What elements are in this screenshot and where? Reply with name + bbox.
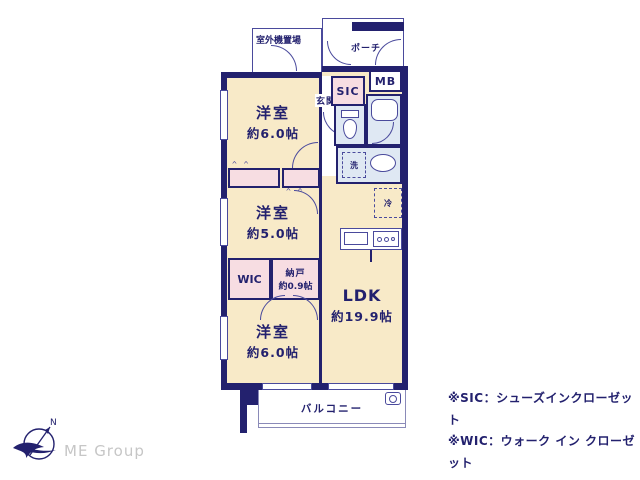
washer-space: 洗 xyxy=(342,152,366,178)
window-bedroom-top xyxy=(220,90,228,140)
floorplan: 室外機置場 ポーチ 洋室 約6.0帖 ^ ^ ^ ^ 洋室 約5.0帖 WI xyxy=(0,0,640,480)
sic-room: SIC xyxy=(331,76,365,106)
balcony-label: バルコニー xyxy=(301,401,363,416)
closet-fold-door-left: ^ ^ xyxy=(232,162,249,168)
company-name: ME Group xyxy=(64,442,145,460)
closet-strip-right xyxy=(282,168,320,188)
kitchen-sink xyxy=(344,232,368,245)
bedroom-top-size: 約6.0帖 xyxy=(247,123,299,142)
window-bedroom-bottom xyxy=(220,316,228,360)
outdoor-unit-door-arc xyxy=(271,45,297,71)
toilet-room xyxy=(334,104,366,146)
slop-sink-drain xyxy=(389,395,397,403)
compass-bird-icon: N xyxy=(12,414,70,470)
washroom: 洗 xyxy=(336,146,402,184)
toilet-tank xyxy=(341,110,359,118)
fridge-label: 冷 xyxy=(384,198,392,209)
washer-label: 洗 xyxy=(350,160,358,171)
storage-name: 納戸 xyxy=(285,266,305,279)
bathroom xyxy=(366,94,402,146)
wall-balcony-step-v xyxy=(240,385,247,433)
bedroom-top-name: 洋室 xyxy=(256,104,290,123)
kitchen-stove xyxy=(373,231,399,247)
kitchen-wall-stub xyxy=(370,250,372,262)
ldk-name: LDK xyxy=(343,286,382,306)
outdoor-unit-area: 室外機置場 xyxy=(252,28,322,74)
bathroom-door-arc xyxy=(372,122,394,144)
storage-size: 約0.9帖 xyxy=(279,279,313,292)
porch-door-arc xyxy=(327,41,351,65)
mb-box: MB xyxy=(369,70,402,92)
balcony-slop-sink xyxy=(385,392,401,405)
note-sic: ※SIC：シューズインクローゼット xyxy=(448,388,640,431)
stove-burner xyxy=(391,237,395,241)
ldk-size: 約19.9帖 xyxy=(331,306,393,325)
wall-top-left xyxy=(221,72,322,78)
stove-burner xyxy=(384,237,389,242)
stove-burner xyxy=(377,237,382,242)
washbasin xyxy=(370,154,396,172)
balcony-inner-line xyxy=(259,423,405,424)
wic-room: WIC xyxy=(228,258,271,300)
bedroom-bottom-size: 約6.0帖 xyxy=(247,342,299,361)
mb-label: MB xyxy=(375,75,396,88)
toilet-bowl xyxy=(343,119,357,139)
window-balcony-left xyxy=(262,383,312,390)
outdoor-unit-label: 室外機置場 xyxy=(256,33,301,46)
balcony: バルコニー xyxy=(258,390,406,428)
wall-right xyxy=(402,66,408,390)
window-balcony-right xyxy=(328,383,394,390)
storage-room: 納戸 約0.9帖 xyxy=(271,258,320,300)
bedroom-mid-size: 約5.0帖 xyxy=(247,223,299,242)
bedroom-bottom-name: 洋室 xyxy=(256,323,290,342)
legend-notes: ※SIC：シューズインクローゼット ※WIC：ウォーク イン クローゼット xyxy=(448,388,640,474)
porch-label: ポーチ xyxy=(351,41,381,54)
north-label: N xyxy=(50,418,57,428)
note-wic: ※WIC：ウォーク イン クローゼット xyxy=(448,431,640,474)
closet-strip-left xyxy=(228,168,280,188)
sic-label: SIC xyxy=(336,85,359,98)
wic-label: WIC xyxy=(237,273,261,286)
window-bedroom-mid xyxy=(220,198,228,246)
fridge-space: 冷 xyxy=(374,188,402,218)
room-ldk: LDK 約19.9帖 xyxy=(324,270,400,340)
porch-top-wall xyxy=(352,22,404,31)
bedroom-mid-name: 洋室 xyxy=(256,204,290,223)
bathtub xyxy=(371,99,398,121)
company-logo: N ME Group xyxy=(12,414,192,472)
kitchen-counter xyxy=(340,228,402,250)
